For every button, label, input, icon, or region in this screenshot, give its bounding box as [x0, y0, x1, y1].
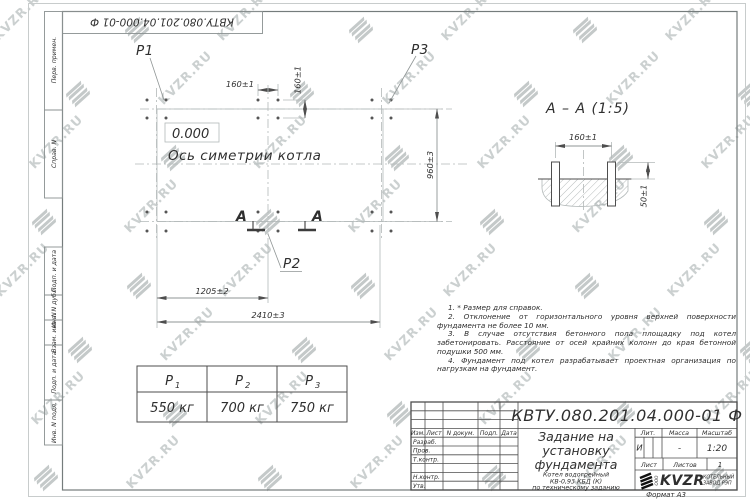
logo-stripes-icon	[640, 474, 653, 489]
section-letter-left: А	[235, 209, 248, 225]
margin-label-sprav-n: Справ. N	[51, 139, 58, 168]
doc-title-line-3: фундамента	[535, 457, 618, 472]
load-table-header-p2: P	[235, 374, 243, 389]
dim-1205: 1205±2	[195, 286, 228, 296]
product-line-1: Котел водогрейный	[543, 472, 609, 479]
dim-160-vertical: 160±1	[293, 66, 303, 94]
section-dim-50: 50±1	[639, 185, 649, 208]
note-3: 3. В случае отсутствия бетонного пола пл…	[437, 330, 736, 356]
drawing-sheet: KVZR.RUKVZR.RUKVZR.RUKVZR.RUKVZR.RUKVZR.…	[0, 0, 750, 500]
scale-value: 1:20	[707, 444, 727, 454]
load-table: P 1 P 2 P 3 550 кг 700 кг 750 кг	[137, 366, 347, 422]
sheets-value: 1	[718, 461, 722, 469]
title-block: КВТУ.080.201.04.000-01 Ф Задание на уста…	[411, 402, 743, 499]
sheets-label: Листов	[672, 462, 697, 469]
sig-row-n-kontr: Н.контр.	[413, 474, 440, 481]
rev-header-list: Лист	[425, 430, 442, 437]
scale-header: Масштаб	[702, 429, 732, 437]
sheet-label: Лист	[640, 462, 657, 469]
load-table-header-p2-sub: 2	[245, 380, 250, 390]
sig-row-t-kontr: Т.контр.	[413, 456, 439, 463]
sig-row-utv: Утв.	[413, 483, 426, 490]
anchor-bolt-right	[608, 162, 616, 206]
section-view: А – А (1:5) 160±1 50±1	[538, 101, 655, 213]
technical-notes: 1. * Размер для справок. 2. Отклонение о…	[437, 304, 736, 374]
lit-value: И	[636, 443, 642, 453]
note-4: 4. Фундамент под котел разрабатывает про…	[437, 357, 736, 375]
load-point-p3-label: P3	[411, 42, 429, 58]
margin-boxes	[45, 12, 263, 446]
load-table-header-p1: P	[165, 374, 173, 389]
company-logo: ООО KVZR КОТЕЛЬНЫЙ ЗАВОД РЭП	[640, 473, 735, 489]
margin-label-vzam-inv-n: Взам. инв. N	[51, 312, 58, 353]
dim-2410: 2410±3	[251, 310, 284, 320]
logo-caption-line-1: КОТЕЛЬНЫЙ	[703, 474, 735, 481]
load-point-p1-label: P1	[136, 43, 154, 59]
dim-960: 960±3	[425, 151, 435, 179]
logo-company-prefix: ООО	[654, 475, 659, 486]
anchor-bolt-left	[552, 162, 560, 206]
document-designation: КВТУ.080.201.04.000-01 Ф	[511, 406, 742, 425]
anchor-bolts-plan	[146, 99, 393, 233]
load-table-header-p3: P	[305, 374, 313, 389]
doc-title-line-2: установку	[541, 443, 610, 458]
load-table-header-p3-sub: 3	[315, 380, 320, 390]
elevation-value: 0.000	[172, 127, 209, 142]
symmetry-axis-label: Ось симетрии котла	[168, 148, 321, 164]
margin-label-podp-data-1: Подп. и дата	[51, 250, 58, 292]
load-value-p2: 700 кг	[220, 401, 264, 416]
sig-row-razrab: Разраб.	[413, 439, 437, 446]
load-table-header-p1-sub: 1	[175, 380, 180, 390]
dim-160-horizontal: 160±1	[226, 79, 254, 89]
margin-label-inv-n-podl: Инв. N подл.	[51, 402, 58, 443]
margin-label-perv-primen: Перв. примен.	[51, 37, 58, 83]
load-value-p1: 550 кг	[150, 401, 194, 416]
section-extension-lines	[556, 142, 656, 179]
section-title: А – А (1:5)	[545, 101, 630, 117]
doc-title-line-1: Задание на	[538, 429, 614, 444]
rev-header-data: Дата	[500, 430, 517, 437]
mass-header: Масса	[669, 430, 689, 437]
rev-header-n-dokum: N докум.	[447, 430, 475, 437]
section-dim-160: 160±1	[569, 132, 597, 142]
section-cut-marks	[247, 221, 316, 230]
load-point-p2-label: P2	[283, 256, 301, 272]
sig-row-prov: Пров.	[413, 448, 431, 455]
format-note: Формат А3	[646, 491, 686, 499]
section-letter-right: А	[311, 209, 324, 225]
margin-label-podp-data-2: Подп. и дата	[51, 351, 58, 393]
note-2: 2. Отклонение от горизонтального уровня …	[437, 313, 736, 331]
logo-caption-line-2: ЗАВОД РЭП	[703, 481, 732, 487]
top-stamp-designation: КВТУ.080.201.04.000-01 Ф	[90, 16, 234, 28]
product-line-3: по техническому заданию	[532, 485, 620, 492]
mass-value: -	[678, 444, 681, 454]
logo-name: KVZR	[660, 473, 705, 489]
plan-view: 0.000 Ось симетрии котла P1 P3 P2 160±1 …	[135, 42, 470, 328]
load-value-p3: 750 кг	[290, 401, 334, 416]
lit-header: Лит.	[640, 430, 656, 437]
rev-header-izm: Изм.	[411, 430, 425, 437]
rev-header-podp: Подп.	[480, 430, 498, 437]
engineering-drawing: Перв. примен. Справ. N Подп. и дата Инв.…	[0, 0, 750, 500]
